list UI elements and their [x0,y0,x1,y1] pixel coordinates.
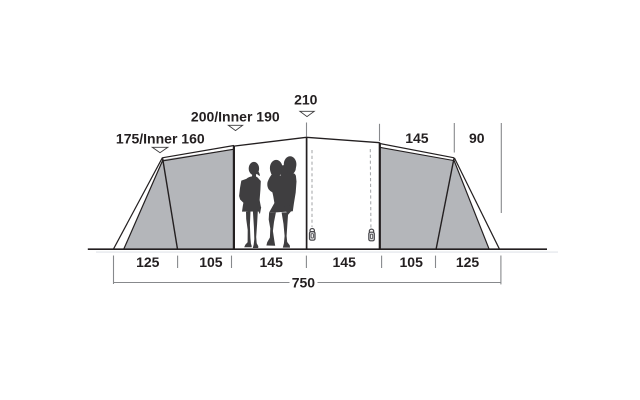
svg-text:145: 145 [333,254,357,270]
svg-text:200/Inner 190: 200/Inner 190 [191,109,280,125]
svg-text:750: 750 [292,274,316,290]
svg-text:90: 90 [469,130,485,146]
svg-text:145: 145 [260,254,284,270]
svg-text:175/Inner 160: 175/Inner 160 [116,131,205,147]
svg-text:210: 210 [294,91,318,107]
svg-text:125: 125 [136,254,160,270]
svg-text:145: 145 [405,130,429,146]
svg-text:105: 105 [199,254,223,270]
svg-text:105: 105 [400,254,424,270]
svg-text:125: 125 [456,254,480,270]
